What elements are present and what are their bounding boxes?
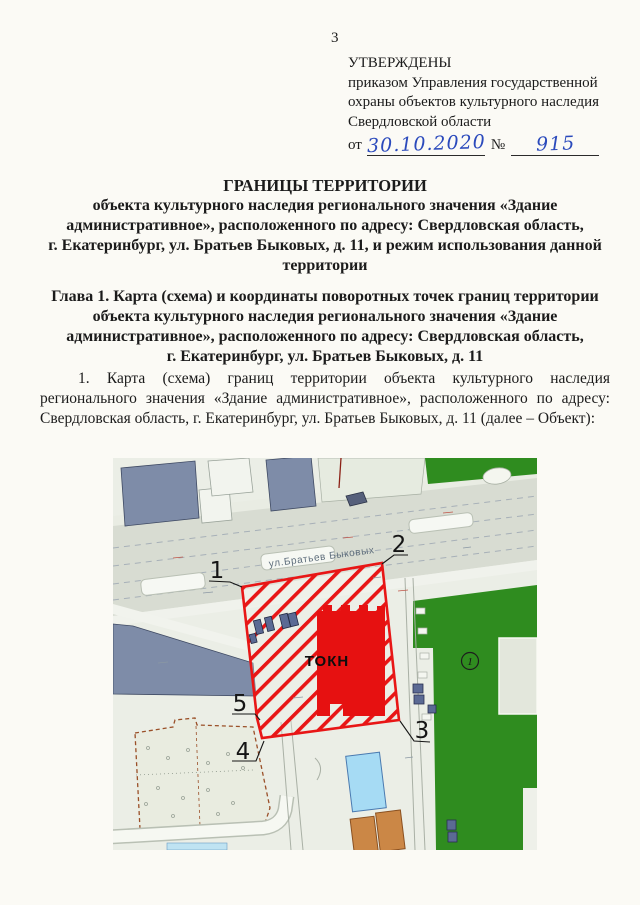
chapter-line: объекта культурного наследия регионально…: [38, 307, 612, 327]
point-label-5: 5: [233, 691, 248, 717]
page-number: 3: [331, 30, 339, 47]
title-line: г. Екатеринбург, ул. Братьев Быковых, д.…: [38, 236, 612, 256]
point-label-2: 2: [392, 532, 407, 558]
map-figure: 1: [113, 458, 537, 850]
title-line: объекта культурного наследия регионально…: [38, 196, 612, 216]
document-page: 3 УТВЕРЖДЕНЫ приказом Управления государ…: [0, 0, 640, 905]
document-title: ГРАНИЦЫ ТЕРРИТОРИИ объекта культурного н…: [38, 176, 612, 276]
point-label-1: 1: [210, 558, 225, 584]
title-line: ГРАНИЦЫ ТЕРРИТОРИИ: [38, 176, 612, 196]
date-underline: 30.10.2020: [367, 133, 485, 156]
number-sign: №: [491, 136, 505, 156]
map-svg: 1: [113, 458, 537, 850]
building-in-green: [499, 638, 537, 714]
okn-label: ТОКН: [305, 653, 349, 670]
handwritten-date: 30.10.2020: [367, 133, 486, 157]
handwritten-number: 915: [535, 134, 575, 155]
title-line: административное», расположенного по адр…: [38, 216, 612, 236]
title-line: территории: [38, 256, 612, 276]
number-underline: 915: [511, 133, 599, 156]
parcel-number-label: 1: [467, 656, 473, 668]
point-label-3: 3: [415, 718, 430, 744]
chapter-line: г. Екатеринбург, ул. Братьев Быковых, д.…: [38, 347, 612, 367]
point-label-4: 4: [236, 739, 251, 765]
chapter-line: Глава 1. Карта (схема) и координаты пово…: [38, 287, 612, 307]
parcel-dashed: [135, 718, 270, 829]
approval-line: Свердловской области: [348, 113, 616, 133]
approval-block: УТВЕРЖДЕНЫ приказом Управления государст…: [348, 54, 616, 156]
approval-line: приказом Управления государственной: [348, 74, 616, 94]
chapter-line: административное», расположенного по адр…: [38, 327, 612, 347]
approval-line: охраны объектов культурного наследия: [348, 93, 616, 113]
approval-date-row: от 30.10.2020 № 915: [348, 133, 616, 156]
building-cyan: [346, 752, 387, 812]
approval-status: УТВЕРЖДЕНЫ: [348, 54, 616, 74]
chapter-heading: Глава 1. Карта (схема) и координаты пово…: [38, 287, 612, 367]
body-paragraph: 1. Карта (схема) границ территории объек…: [40, 369, 610, 429]
date-prefix: от: [348, 136, 362, 156]
